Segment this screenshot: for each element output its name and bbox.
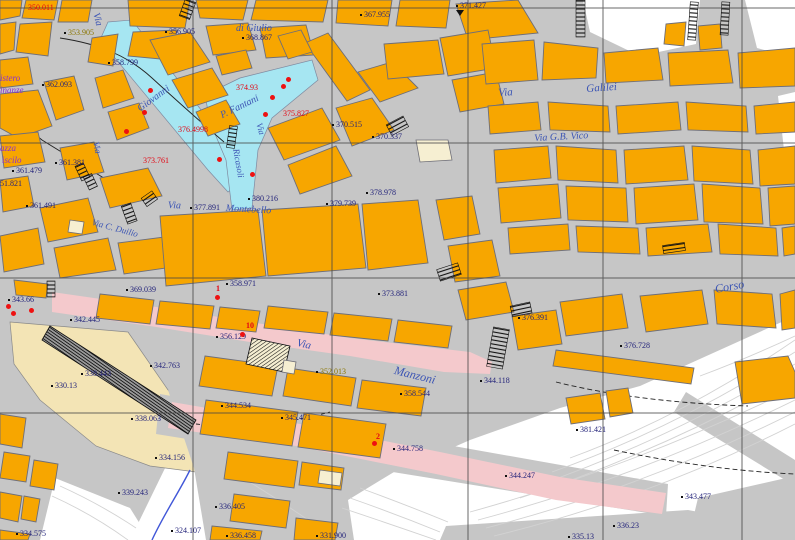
- map-geometry: [0, 0, 795, 540]
- cadastral-map-view: ViaGiovanniViaP. FantaniViaRicasolidi Gi…: [0, 0, 795, 540]
